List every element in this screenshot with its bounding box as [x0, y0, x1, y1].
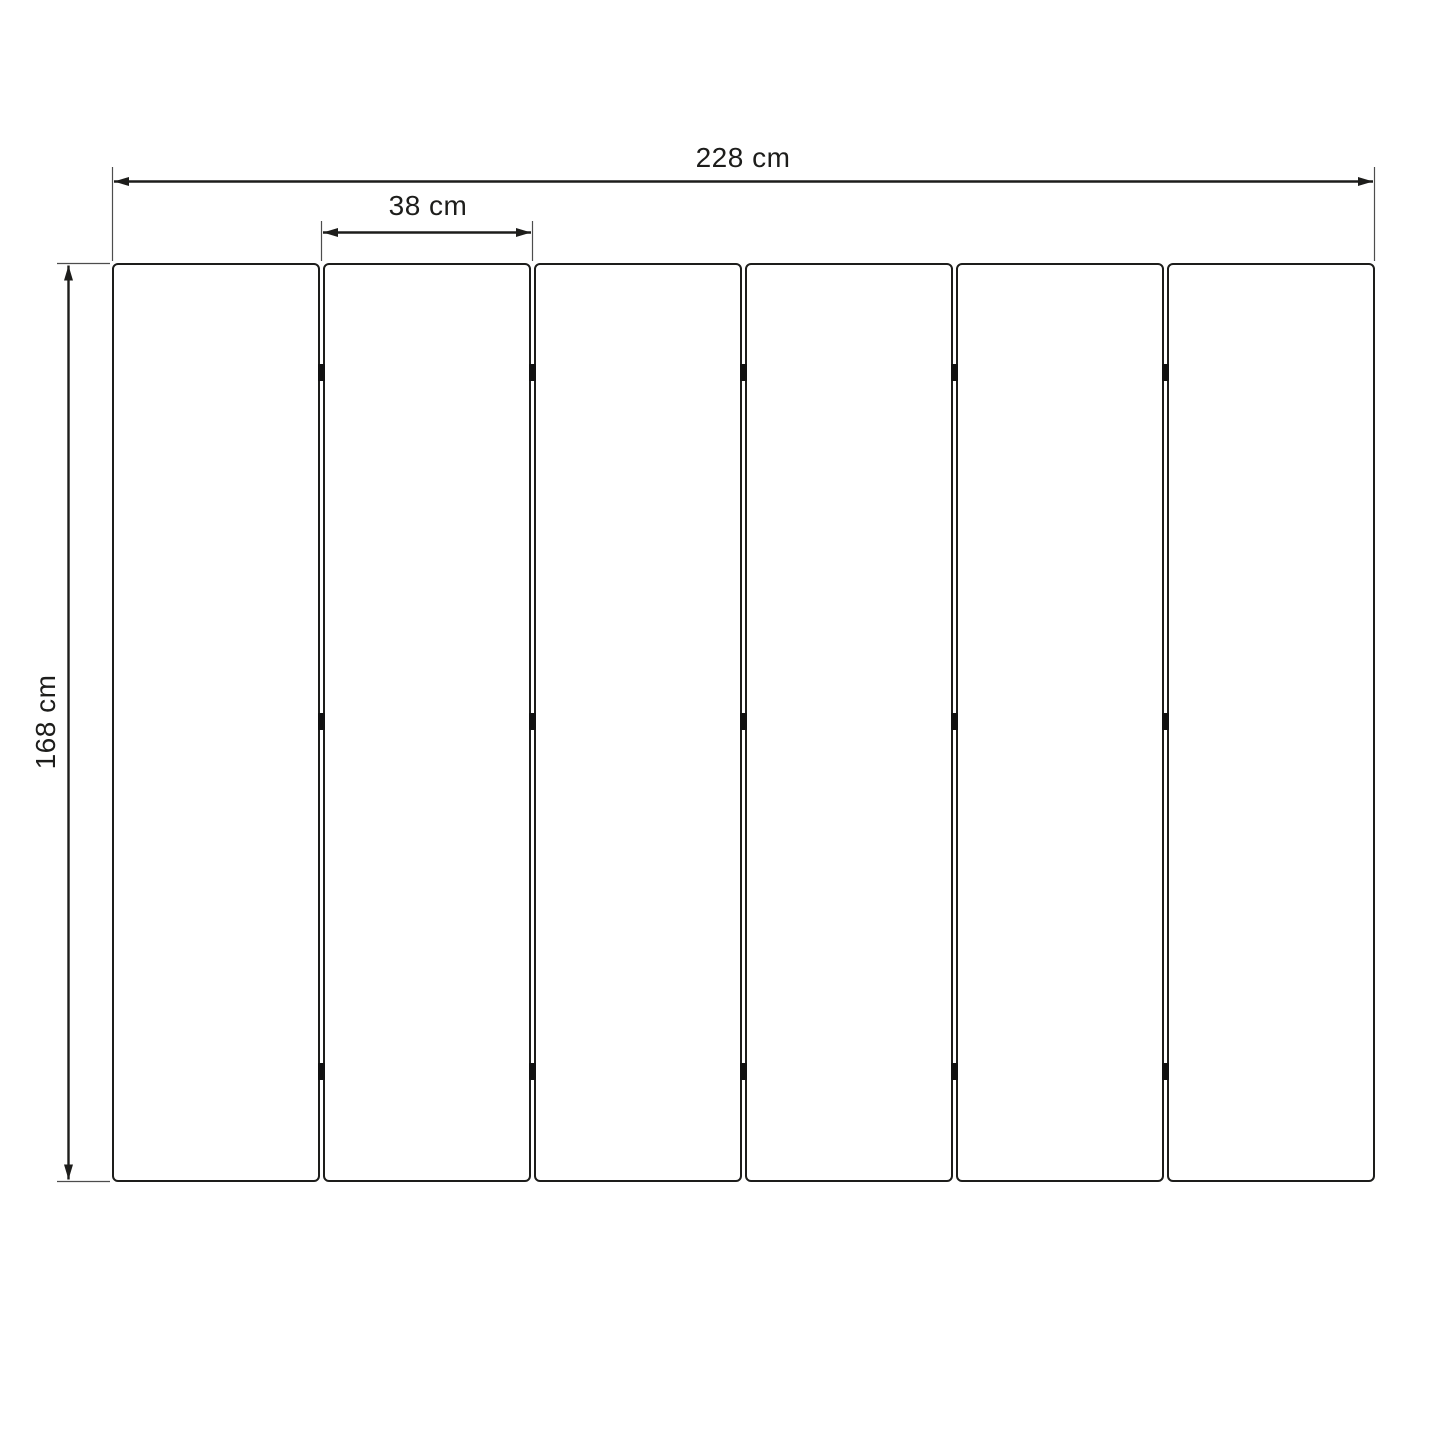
hinge-connector: [740, 1063, 747, 1080]
hinge-connector: [529, 713, 536, 730]
hinge-connector: [740, 713, 747, 730]
hinge-connector: [1162, 364, 1169, 381]
hinge-connector: [318, 364, 325, 381]
height-dimension-label: 168 cm: [29, 622, 63, 822]
panel-screen-dimension-diagram: 228 cm 38 cm 168 cm: [0, 0, 1445, 1445]
panel-4: [745, 263, 953, 1182]
hinge-connector: [951, 713, 958, 730]
panels-row: [112, 263, 1375, 1182]
total-width-dimension-label: 228 cm: [643, 141, 843, 175]
hinge-connector: [318, 1063, 325, 1080]
panel-6: [1167, 263, 1375, 1182]
panel-width-dimension-label: 38 cm: [328, 189, 528, 223]
hinge-connector: [951, 1063, 958, 1080]
panel-2: [323, 263, 531, 1182]
hinge-connector: [740, 364, 747, 381]
panel-5: [956, 263, 1164, 1182]
hinge-connector: [1162, 713, 1169, 730]
hinge-connector: [951, 364, 958, 381]
panel-3: [534, 263, 742, 1182]
panel-1: [112, 263, 320, 1182]
hinge-connector: [1162, 1063, 1169, 1080]
hinge-connector: [529, 364, 536, 381]
hinge-connector: [318, 713, 325, 730]
hinge-connector: [529, 1063, 536, 1080]
